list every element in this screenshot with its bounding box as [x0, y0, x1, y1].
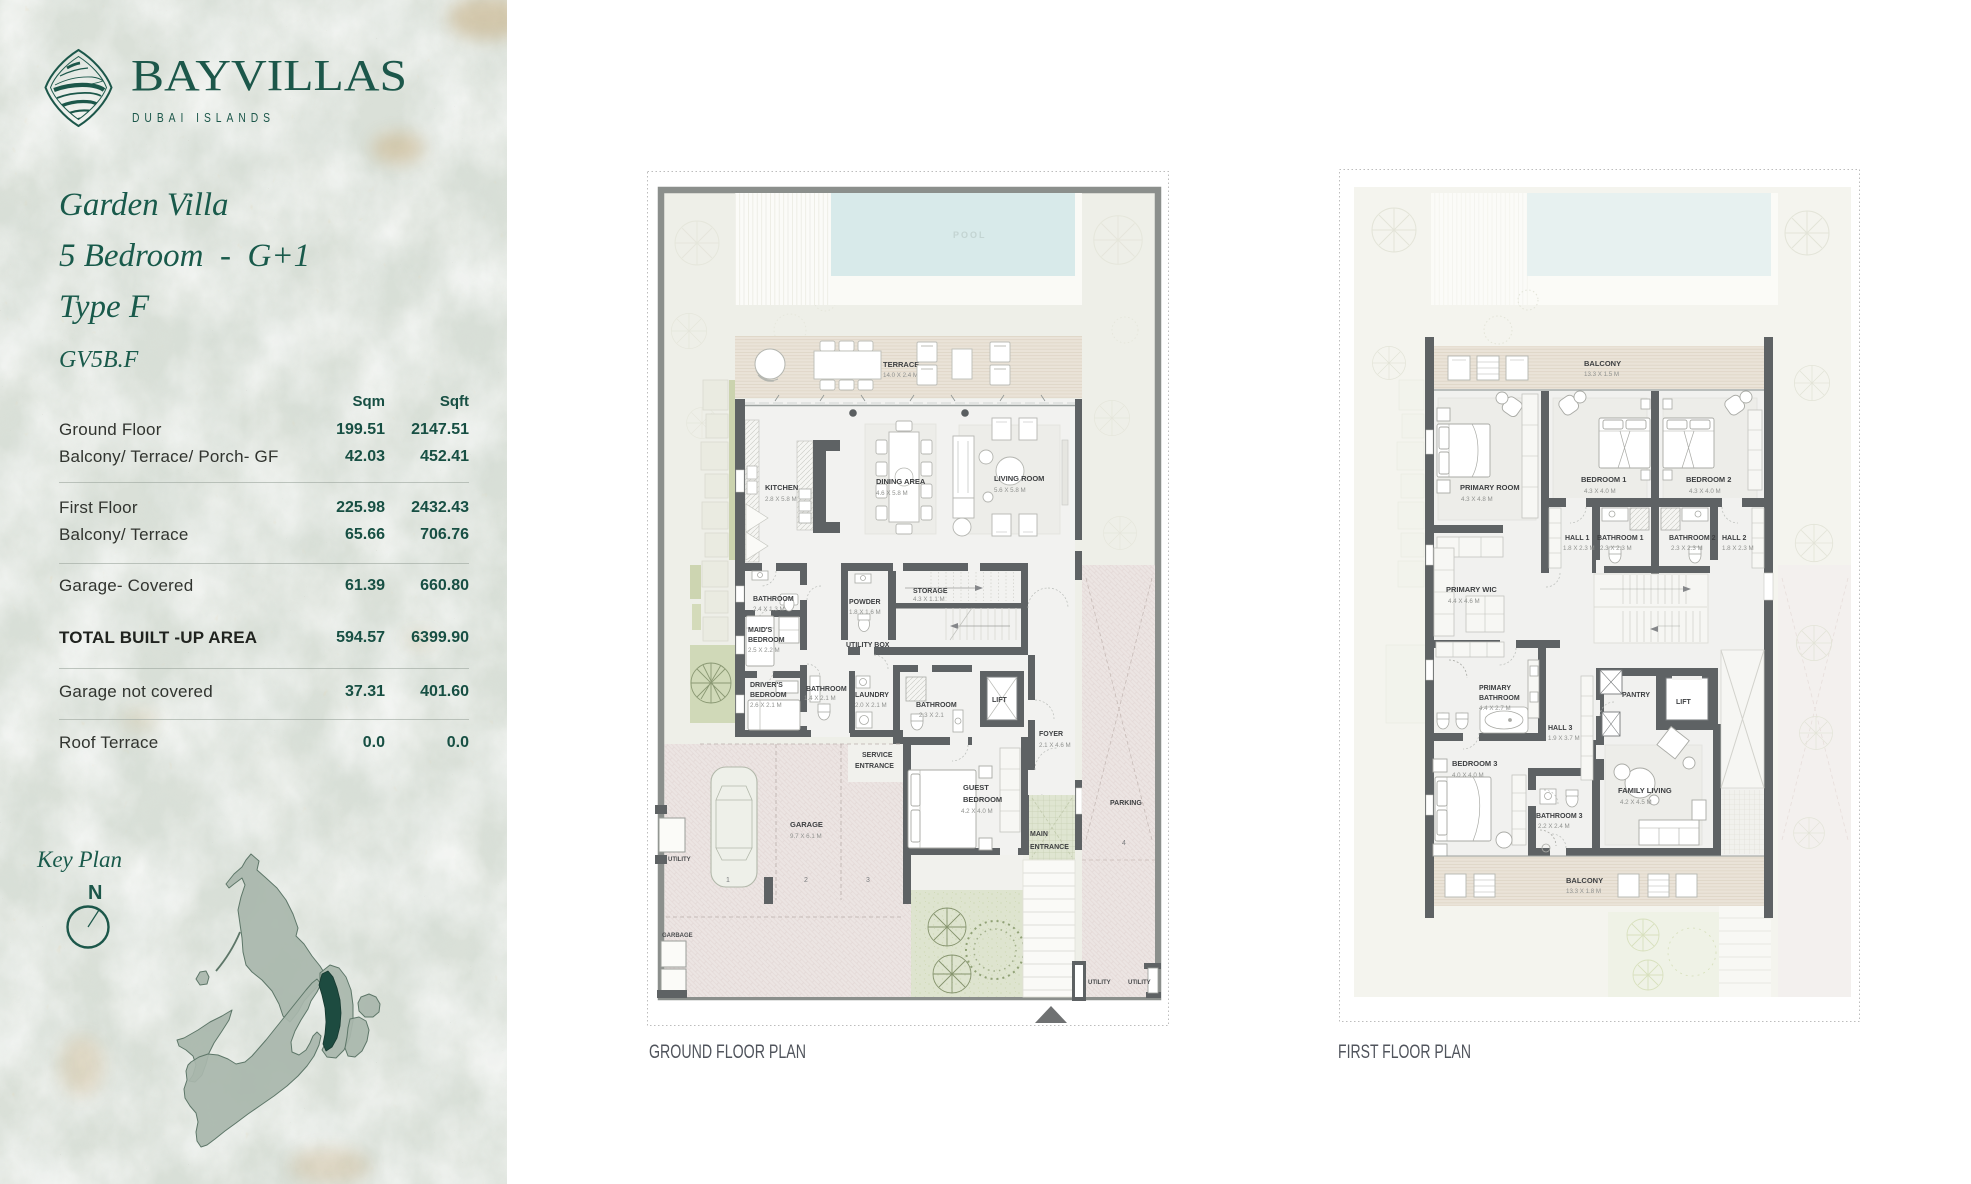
svg-text:4.0 X 4.0 M: 4.0 X 4.0 M	[1452, 772, 1484, 779]
svg-text:4.3 X 1.1 M: 4.3 X 1.1 M	[913, 596, 945, 603]
svg-text:BATHROOM 2: BATHROOM 2	[1669, 535, 1716, 542]
svg-text:BATHROOM: BATHROOM	[753, 596, 794, 603]
svg-text:HALL 2: HALL 2	[1722, 535, 1746, 542]
svg-text:MAID'S: MAID'S	[748, 627, 773, 634]
svg-text:4: 4	[1122, 840, 1126, 847]
svg-text:UTILITY: UTILITY	[1088, 980, 1111, 986]
svg-text:4.2 X 4.5 M: 4.2 X 4.5 M	[1620, 799, 1652, 806]
svg-text:4.4 X 4.6 M: 4.4 X 4.6 M	[1448, 598, 1480, 605]
svg-text:4.6 X 5.8 M: 4.6 X 5.8 M	[876, 490, 908, 497]
svg-text:POOL: POOL	[953, 230, 987, 240]
svg-text:UTILITY BOX: UTILITY BOX	[846, 642, 890, 649]
svg-text:1: 1	[726, 877, 730, 884]
svg-text:FAMILY LIVING: FAMILY LIVING	[1618, 786, 1672, 795]
svg-text:2.2 X 2.4 M: 2.2 X 2.4 M	[1538, 823, 1570, 830]
svg-text:4.3 X 4.0 M: 4.3 X 4.0 M	[1689, 488, 1721, 495]
svg-text:PARKING: PARKING	[1110, 800, 1142, 807]
svg-text:ENTRANCE: ENTRANCE	[1030, 844, 1069, 851]
svg-text:HALL 1: HALL 1	[1565, 535, 1589, 542]
svg-text:9.7 X 6.1 M: 9.7 X 6.1 M	[790, 833, 822, 840]
svg-text:STORAGE: STORAGE	[913, 588, 948, 595]
svg-text:UTILITY: UTILITY	[1128, 980, 1151, 986]
svg-text:HALL 3: HALL 3	[1548, 725, 1572, 732]
svg-text:BATHROOM: BATHROOM	[916, 702, 957, 709]
svg-text:13.3 X 1.8 M: 13.3 X 1.8 M	[1566, 888, 1601, 895]
svg-text:4.2 X 4.0 M: 4.2 X 4.0 M	[961, 808, 993, 815]
svg-text:KITCHEN: KITCHEN	[765, 483, 798, 492]
svg-text:UTILITY: UTILITY	[668, 857, 691, 863]
svg-text:LAUNDRY: LAUNDRY	[855, 692, 889, 699]
svg-text:2.3 X 2.3 M: 2.3 X 2.3 M	[1600, 545, 1632, 552]
svg-text:BEDROOM: BEDROOM	[748, 637, 785, 644]
svg-text:1.9 X 3.7 M: 1.9 X 3.7 M	[1548, 735, 1580, 742]
svg-text:BATHROOM 1: BATHROOM 1	[1597, 535, 1644, 542]
svg-text:DINING AREA: DINING AREA	[876, 477, 926, 486]
svg-text:MAIN: MAIN	[1030, 831, 1048, 838]
svg-text:DRIVER'S: DRIVER'S	[750, 682, 783, 689]
svg-text:2.4 X 1.3 M: 2.4 X 1.3 M	[753, 606, 785, 613]
svg-text:LIFT: LIFT	[1676, 699, 1691, 706]
svg-text:1.8 X 1.6 M: 1.8 X 1.6 M	[849, 609, 881, 616]
svg-text:2.0 X 2.1 M: 2.0 X 2.1 M	[855, 702, 887, 709]
svg-text:LIVING ROOM: LIVING ROOM	[994, 474, 1044, 483]
svg-text:GARAGE: GARAGE	[790, 820, 823, 829]
svg-text:BEDROOM: BEDROOM	[963, 795, 1002, 804]
svg-text:BATHROOM: BATHROOM	[806, 686, 847, 693]
svg-text:TERRACE: TERRACE	[883, 360, 919, 369]
svg-text:PRIMARY WIC: PRIMARY WIC	[1446, 585, 1497, 594]
svg-text:PANTRY: PANTRY	[1622, 692, 1650, 699]
svg-text:2.3 X 2.3 M: 2.3 X 2.3 M	[1671, 545, 1703, 552]
svg-text:PRIMARY ROOM: PRIMARY ROOM	[1460, 483, 1520, 492]
svg-text:ENTRANCE: ENTRANCE	[855, 763, 894, 770]
svg-text:BALCONY: BALCONY	[1584, 359, 1621, 368]
svg-text:BATHROOM: BATHROOM	[1479, 695, 1520, 702]
svg-text:1.8 X 2.3 M: 1.8 X 2.3 M	[1563, 545, 1595, 552]
svg-text:FOYER: FOYER	[1039, 731, 1063, 738]
svg-text:GUEST: GUEST	[963, 783, 989, 792]
svg-text:BATHROOM 3: BATHROOM 3	[1536, 813, 1583, 820]
svg-text:4.3 X 4.8 M: 4.3 X 4.8 M	[1461, 496, 1493, 503]
svg-text:GARBAGE: GARBAGE	[662, 933, 693, 939]
svg-text:2.3 X 2.1: 2.3 X 2.1	[919, 712, 944, 719]
svg-text:3: 3	[866, 877, 870, 884]
svg-text:2.5 X 2.2 M: 2.5 X 2.2 M	[748, 647, 780, 654]
svg-text:2.6 X 2.1 M: 2.6 X 2.1 M	[750, 702, 782, 709]
svg-text:1.4 X 2.1 M: 1.4 X 2.1 M	[804, 695, 836, 702]
svg-text:1.8 X 2.3 M: 1.8 X 2.3 M	[1722, 545, 1754, 552]
svg-text:2: 2	[804, 877, 808, 884]
svg-text:5.6 X 5.8 M: 5.6 X 5.8 M	[994, 487, 1026, 494]
svg-text:SERVICE: SERVICE	[862, 752, 893, 759]
svg-text:2.8 X 5.8 M: 2.8 X 5.8 M	[765, 496, 797, 503]
svg-text:FIRST FLOOR PLAN: FIRST FLOOR PLAN	[1338, 1041, 1471, 1063]
svg-text:BEDROOM 1: BEDROOM 1	[1581, 475, 1626, 484]
svg-text:BEDROOM 2: BEDROOM 2	[1686, 475, 1731, 484]
svg-text:2.1 X 4.6 M: 2.1 X 4.6 M	[1039, 742, 1071, 749]
svg-text:BEDROOM 3: BEDROOM 3	[1452, 759, 1497, 768]
svg-text:POWDER: POWDER	[849, 599, 881, 606]
svg-text:13.3 X 1.5 M: 13.3 X 1.5 M	[1584, 371, 1619, 378]
svg-text:4.4 X 2.7 M: 4.4 X 2.7 M	[1479, 705, 1511, 712]
svg-text:GROUND FLOOR PLAN: GROUND FLOOR PLAN	[649, 1041, 806, 1063]
svg-text:14.0 X 2.4 M: 14.0 X 2.4 M	[883, 372, 918, 379]
svg-text:4.3 X 4.0 M: 4.3 X 4.0 M	[1584, 488, 1616, 495]
svg-text:BALCONY: BALCONY	[1566, 876, 1603, 885]
svg-text:BEDROOM: BEDROOM	[750, 692, 787, 699]
svg-text:PRIMARY: PRIMARY	[1479, 685, 1511, 692]
svg-text:LIFT: LIFT	[992, 697, 1007, 704]
